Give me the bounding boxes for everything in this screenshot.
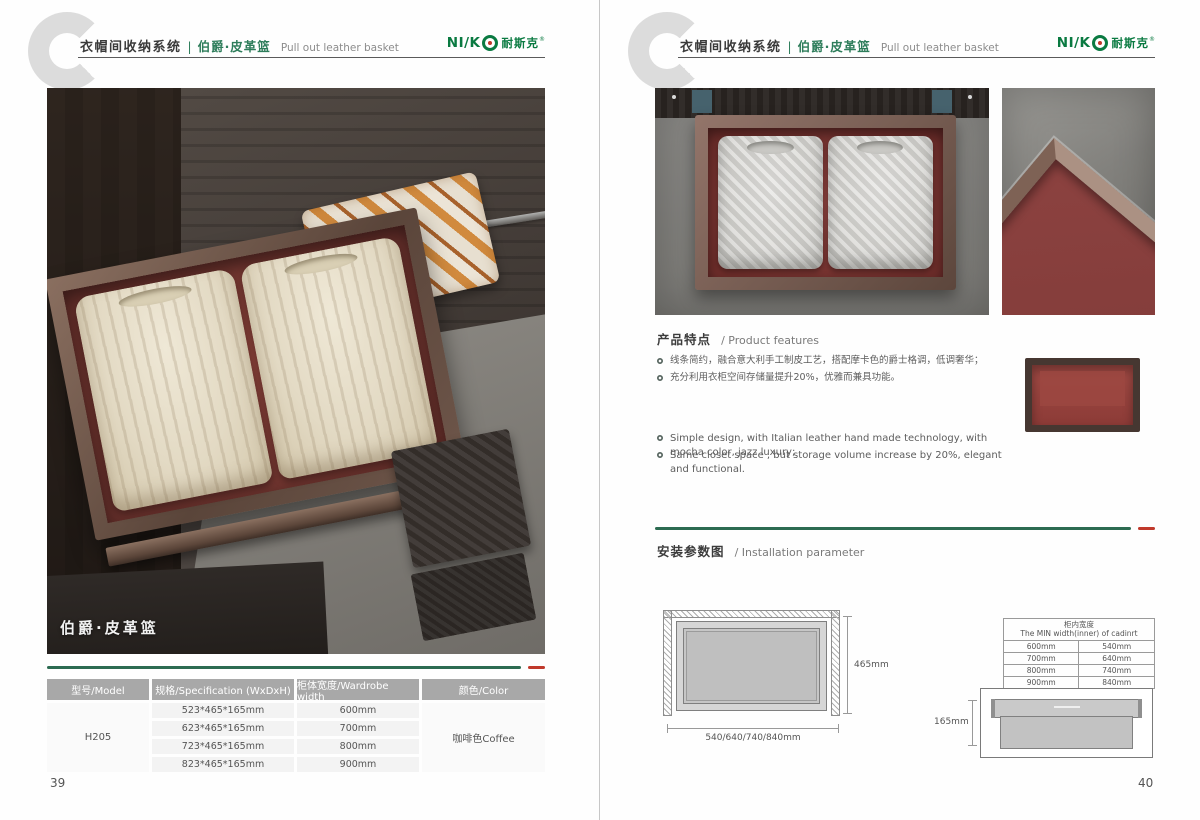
diagram-wall-right — [831, 610, 840, 716]
feature-bullet-cn: 线条简约，融合意大利手工制皮工艺，搭配摩卡色的爵士格调，低调奢华； — [657, 355, 1017, 368]
diagram-wall-left — [663, 610, 672, 716]
rule-red-segment — [1138, 527, 1155, 530]
photo-sweater-left — [73, 267, 273, 512]
diagram-basket-inner — [686, 631, 817, 701]
header-underline — [78, 57, 545, 58]
min-width-title-en: The MIN width(inner) of cadinrt — [1004, 629, 1154, 638]
column-header-wardrobe-width: 柜体宽度/Wardrobe width — [297, 679, 419, 700]
logo-latin-text: NI/K — [447, 35, 481, 51]
rule-red-segment — [528, 666, 545, 669]
dimension-line-165 — [972, 700, 973, 746]
side-view-diagram — [980, 688, 1153, 758]
header-subtitle-en: Pull out leather basket — [881, 42, 999, 54]
features-title: 产品特点 / Product features — [657, 329, 819, 348]
nisko-logo: NI/K 耐斯克 ® — [1057, 35, 1155, 51]
min-width-row: 700mm 640mm — [1004, 652, 1155, 664]
page-40: 衣帽间收纳系统 | 伯爵·皮革篮 Pull out leather basket… — [600, 0, 1200, 820]
bullet-icon — [657, 435, 663, 441]
logo-o-icon — [1092, 35, 1108, 51]
top-view-diagram — [663, 610, 840, 716]
dimension-label-465: 465mm — [854, 660, 889, 670]
width-cell: 900mm — [297, 757, 419, 772]
diagram-basket-outer — [676, 621, 827, 711]
spec-cell: 623*465*165mm — [152, 721, 294, 736]
dimension-tick — [843, 616, 852, 617]
spec-cell: 723*465*165mm — [152, 739, 294, 754]
bullet-text: Same closet space , but storage volume i… — [670, 449, 1017, 476]
dimension-tick — [843, 713, 852, 714]
installation-title: 安装参数图 / Installation parameter — [657, 541, 864, 560]
width-cell: 700mm — [297, 721, 419, 736]
logo-o-dot — [1098, 41, 1102, 45]
column-header-model: 型号/Model — [47, 679, 149, 700]
header-separator: | — [788, 40, 792, 54]
diagram-basket-frame — [683, 628, 820, 704]
dimension-tick — [667, 724, 668, 733]
spec-column: 523*465*165mm 623*465*165mm 723*465*165m… — [152, 703, 294, 772]
min-width-table-header: 柜内宽度 The MIN width(inner) of cadinrt — [1004, 619, 1155, 641]
header-subtitle-en: Pull out leather basket — [281, 42, 399, 54]
photo-sweater-left — [718, 136, 823, 269]
bullet-icon — [657, 375, 663, 381]
width-column: 600mm 700mm 800mm 900mm — [297, 703, 419, 772]
feature-bullet-cn: 充分利用衣柜空间存储量提升20%，优雅而兼具功能。 — [657, 372, 1017, 385]
cabinet-width-cell: 700mm — [1004, 652, 1079, 664]
rail-end-left — [991, 699, 995, 718]
cabinet-width-cell: 900mm — [1004, 676, 1079, 688]
rule-green-segment — [655, 527, 1131, 530]
cabinet-width-cell: 600mm — [1004, 640, 1079, 652]
dimension-line-width — [667, 728, 839, 729]
photo-sweater-right-collar — [283, 250, 359, 279]
bullet-text: 线条简约，融合意大利手工制皮工艺，搭配摩卡色的爵士格调，低调奢华； — [670, 355, 984, 368]
column-header-specification: 规格/Specification (WxDxH) — [152, 679, 294, 700]
min-width-table: 柜内宽度 The MIN width(inner) of cadinrt 600… — [1003, 618, 1155, 689]
header-separator: | — [188, 40, 192, 54]
spec-cell: 823*465*165mm — [152, 757, 294, 772]
top-view-photo — [655, 88, 989, 315]
main-product-photo: 伯爵·皮革篮 — [47, 88, 545, 654]
feature-bullet-en: Same closet space , but storage volume i… — [657, 449, 1017, 476]
nisko-logo: NI/K 耐斯克 ® — [447, 35, 545, 51]
min-width-row: 900mm 840mm — [1004, 676, 1155, 688]
min-width-row: 800mm 740mm — [1004, 664, 1155, 676]
spec-table-header-row: 型号/Model 规格/Specification (WxDxH) 柜体宽度/W… — [47, 679, 545, 700]
features-title-cn: 产品特点 — [657, 332, 711, 347]
logo-latin-text: NI/K — [1057, 35, 1091, 51]
section-rule — [655, 527, 1155, 530]
logo-registered-mark: ® — [539, 36, 545, 43]
section-rule — [47, 666, 545, 669]
rule-green-segment — [47, 666, 521, 669]
bullet-icon — [657, 358, 663, 364]
photo-sweater-right — [239, 235, 439, 480]
photo-lower-cabinet — [47, 562, 328, 654]
dimension-tick — [968, 700, 977, 701]
color-cell: 咖啡色Coffee — [422, 703, 545, 772]
diagram-wall-top — [663, 610, 840, 618]
corner-detail-photo — [1002, 88, 1155, 315]
diagram-basket-body — [1000, 716, 1133, 749]
photo-sweater-right-collar — [857, 141, 903, 154]
dimension-label-widths: 540/640/740/840mm — [667, 733, 839, 743]
catalog-spread: 衣帽间收纳系统 | 伯爵·皮革篮 Pull out leather basket… — [0, 0, 1200, 820]
photo-basket-interior — [708, 128, 943, 277]
dimension-line-height — [847, 616, 848, 714]
width-cell: 800mm — [297, 739, 419, 754]
min-width-title-cn: 柜内宽度 — [1004, 620, 1154, 629]
width-cell: 600mm — [297, 703, 419, 718]
photo-sweater-left-collar — [747, 141, 793, 154]
page-header: 衣帽间收纳系统 | 伯爵·皮革篮 Pull out leather basket — [680, 36, 999, 55]
logo-cn-text: 耐斯克 — [1112, 35, 1150, 51]
page-number-right: 40 — [1138, 776, 1153, 790]
product-thumbnail — [1025, 358, 1140, 432]
dimension-tick — [968, 745, 977, 746]
model-cell: H205 — [47, 703, 149, 772]
photo-sweater-right — [828, 136, 933, 269]
dimension-label-165: 165mm — [934, 717, 969, 727]
spec-table: 型号/Model 规格/Specification (WxDxH) 柜体宽度/W… — [47, 679, 545, 772]
header-title-cn: 衣帽间收纳系统 — [680, 36, 782, 55]
logo-o-icon — [482, 35, 498, 51]
header-title-cn: 衣帽间收纳系统 — [80, 36, 182, 55]
header-subtitle-cn: 伯爵·皮革篮 — [798, 36, 871, 55]
photo-blue-accent-left — [692, 90, 712, 113]
photo-woven-basket — [390, 429, 530, 568]
photo-sweater-left-collar — [117, 282, 193, 311]
page-number-left: 39 — [50, 776, 65, 790]
photo-basket-frame — [695, 115, 956, 290]
bullet-icon — [657, 452, 663, 458]
photo-blue-accent-right — [932, 90, 952, 113]
features-title-en: / Product features — [721, 334, 819, 347]
min-width-table-title: 柜内宽度 The MIN width(inner) of cadinrt — [1004, 619, 1155, 641]
photo-basket-interior — [63, 225, 450, 523]
product-thumbnail-back-panel — [1040, 371, 1125, 406]
rail-brand-mark — [1054, 706, 1080, 708]
inner-width-cell: 540mm — [1079, 640, 1155, 652]
column-header-color: 颜色/Color — [422, 679, 545, 700]
photo-fitting-left — [672, 95, 676, 99]
header-subtitle-cn: 伯爵·皮革篮 — [198, 36, 271, 55]
page-39: 衣帽间收纳系统 | 伯爵·皮革篮 Pull out leather basket… — [0, 0, 600, 820]
spec-table-body: H205 523*465*165mm 623*465*165mm 723*465… — [47, 703, 545, 772]
dimension-tick — [838, 724, 839, 733]
installation-title-en: / Installation parameter — [735, 546, 865, 559]
installation-title-cn: 安装参数图 — [657, 544, 725, 559]
rail-end-right — [1138, 699, 1142, 718]
logo-o-dot — [488, 41, 492, 45]
bullet-text: 充分利用衣柜空间存储量提升20%，优雅而兼具功能。 — [670, 372, 900, 385]
logo-cn-text: 耐斯克 — [502, 35, 540, 51]
header-underline — [678, 57, 1155, 58]
page-header: 衣帽间收纳系统 | 伯爵·皮革篮 Pull out leather basket — [80, 36, 399, 55]
inner-width-cell: 840mm — [1079, 676, 1155, 688]
logo-registered-mark: ® — [1149, 36, 1155, 43]
photo-basket-corner — [1002, 138, 1155, 315]
spec-cell: 523*465*165mm — [152, 703, 294, 718]
min-width-row: 600mm 540mm — [1004, 640, 1155, 652]
inner-width-cell: 740mm — [1079, 664, 1155, 676]
photo-caption: 伯爵·皮革篮 — [60, 617, 159, 638]
inner-width-cell: 640mm — [1079, 652, 1155, 664]
cabinet-width-cell: 800mm — [1004, 664, 1079, 676]
